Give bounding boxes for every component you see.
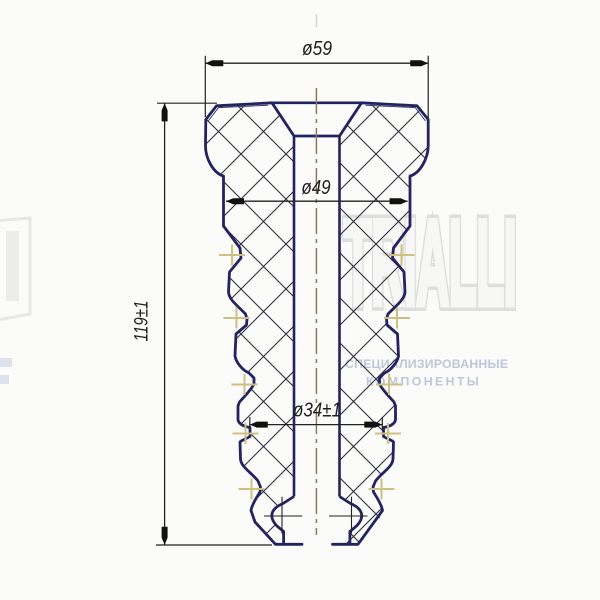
svg-text:КОМПОНЕНТЫ: КОМПОНЕНТЫ	[366, 375, 481, 389]
svg-text:СПЕЦИАЛИЗИРОВАННЫЕ: СПЕЦИАЛИЗИРОВАННЫЕ	[345, 357, 508, 371]
svg-text:119±1: 119±1	[130, 301, 152, 342]
svg-text:ø49: ø49	[301, 176, 330, 199]
svg-text:TRIALLI: TRIALLI	[344, 197, 516, 331]
svg-text:ø34±1: ø34±1	[293, 398, 341, 421]
svg-text:ø59: ø59	[302, 38, 332, 61]
